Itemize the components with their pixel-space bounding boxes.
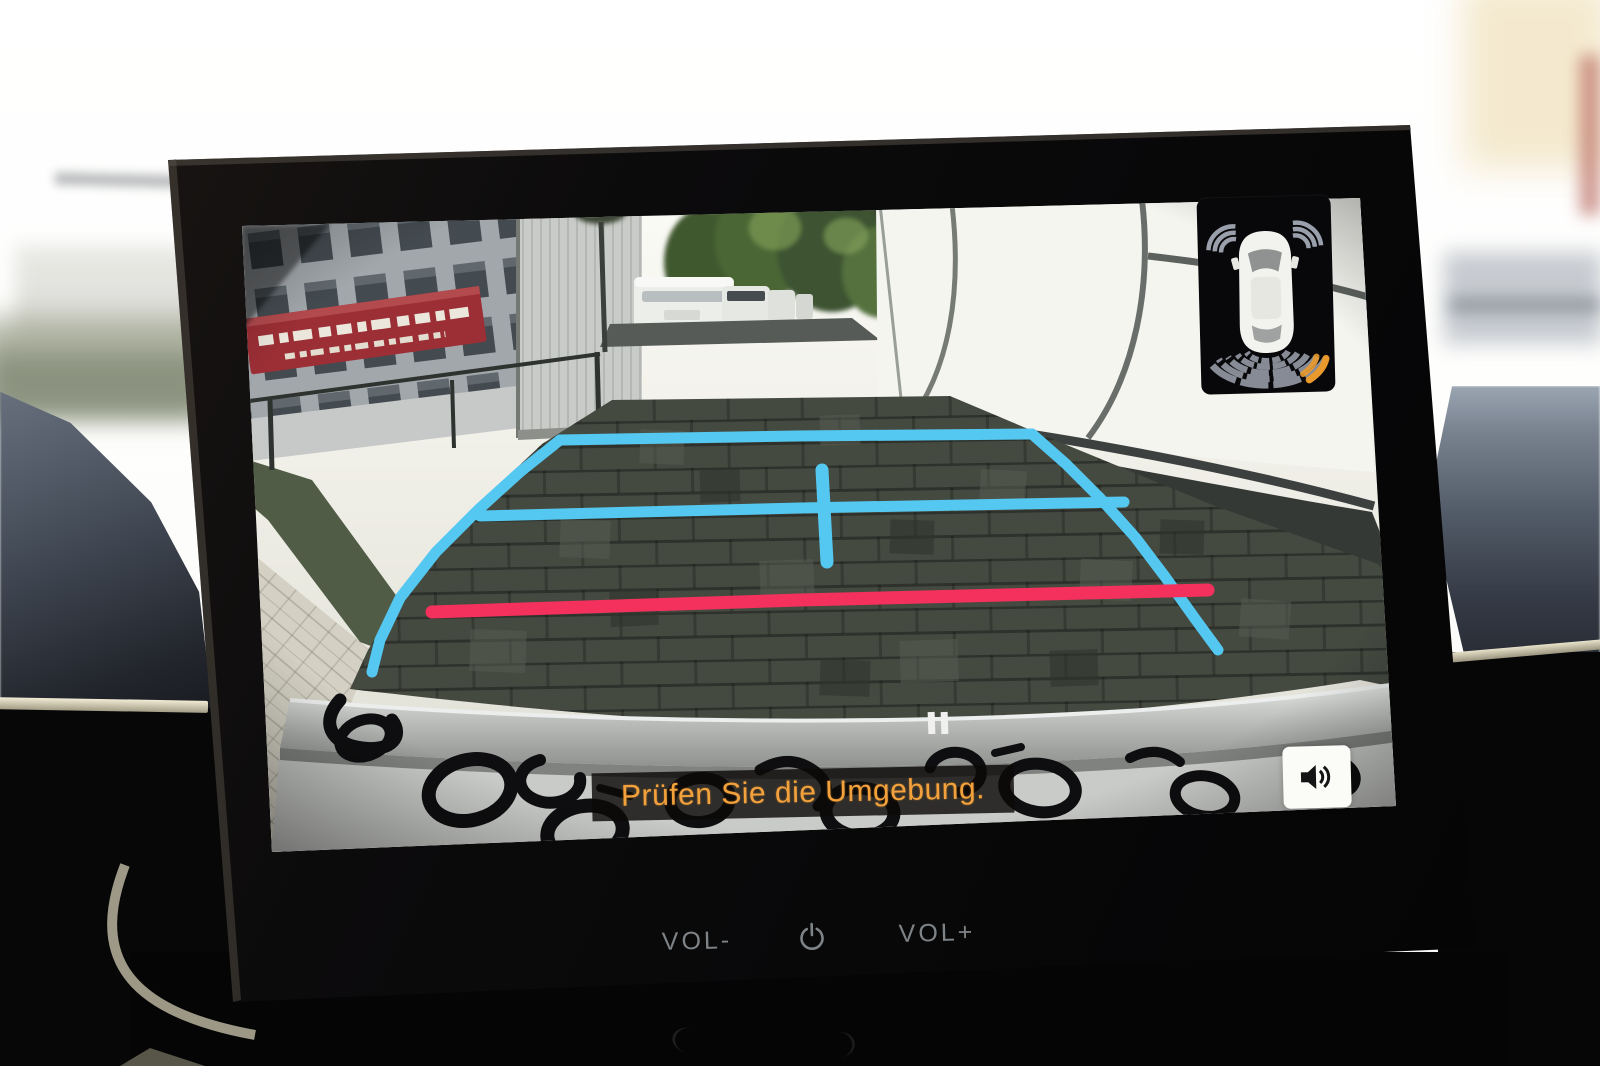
volume-up-button[interactable]: VOL+ bbox=[872, 912, 1003, 953]
front-left-sensor-arcs bbox=[1203, 220, 1243, 258]
camera-warning-subtitle: Prüfen Sie die Umgebung. bbox=[592, 765, 1015, 822]
car-top-icon bbox=[1230, 230, 1302, 354]
volume-up-label: VOL+ bbox=[898, 918, 975, 949]
power-button[interactable] bbox=[785, 917, 838, 958]
volume-down-button[interactable]: VOL- bbox=[632, 920, 763, 961]
parking-sensor-widget bbox=[1196, 195, 1335, 394]
power-icon bbox=[797, 922, 828, 955]
speaker-button[interactable] bbox=[1282, 745, 1352, 809]
volume-down-label: VOL- bbox=[661, 926, 732, 957]
rear-camera-screen[interactable] bbox=[0, 0, 1600, 1066]
car-interior-scene: Prüfen Sie die Umgebung. VOL- VOL+ bbox=[0, 0, 1600, 1066]
speaker-icon bbox=[1299, 762, 1336, 793]
subtitle-text: Prüfen Sie die Umgebung. bbox=[621, 772, 986, 814]
front-right-sensor-arcs bbox=[1286, 216, 1326, 254]
